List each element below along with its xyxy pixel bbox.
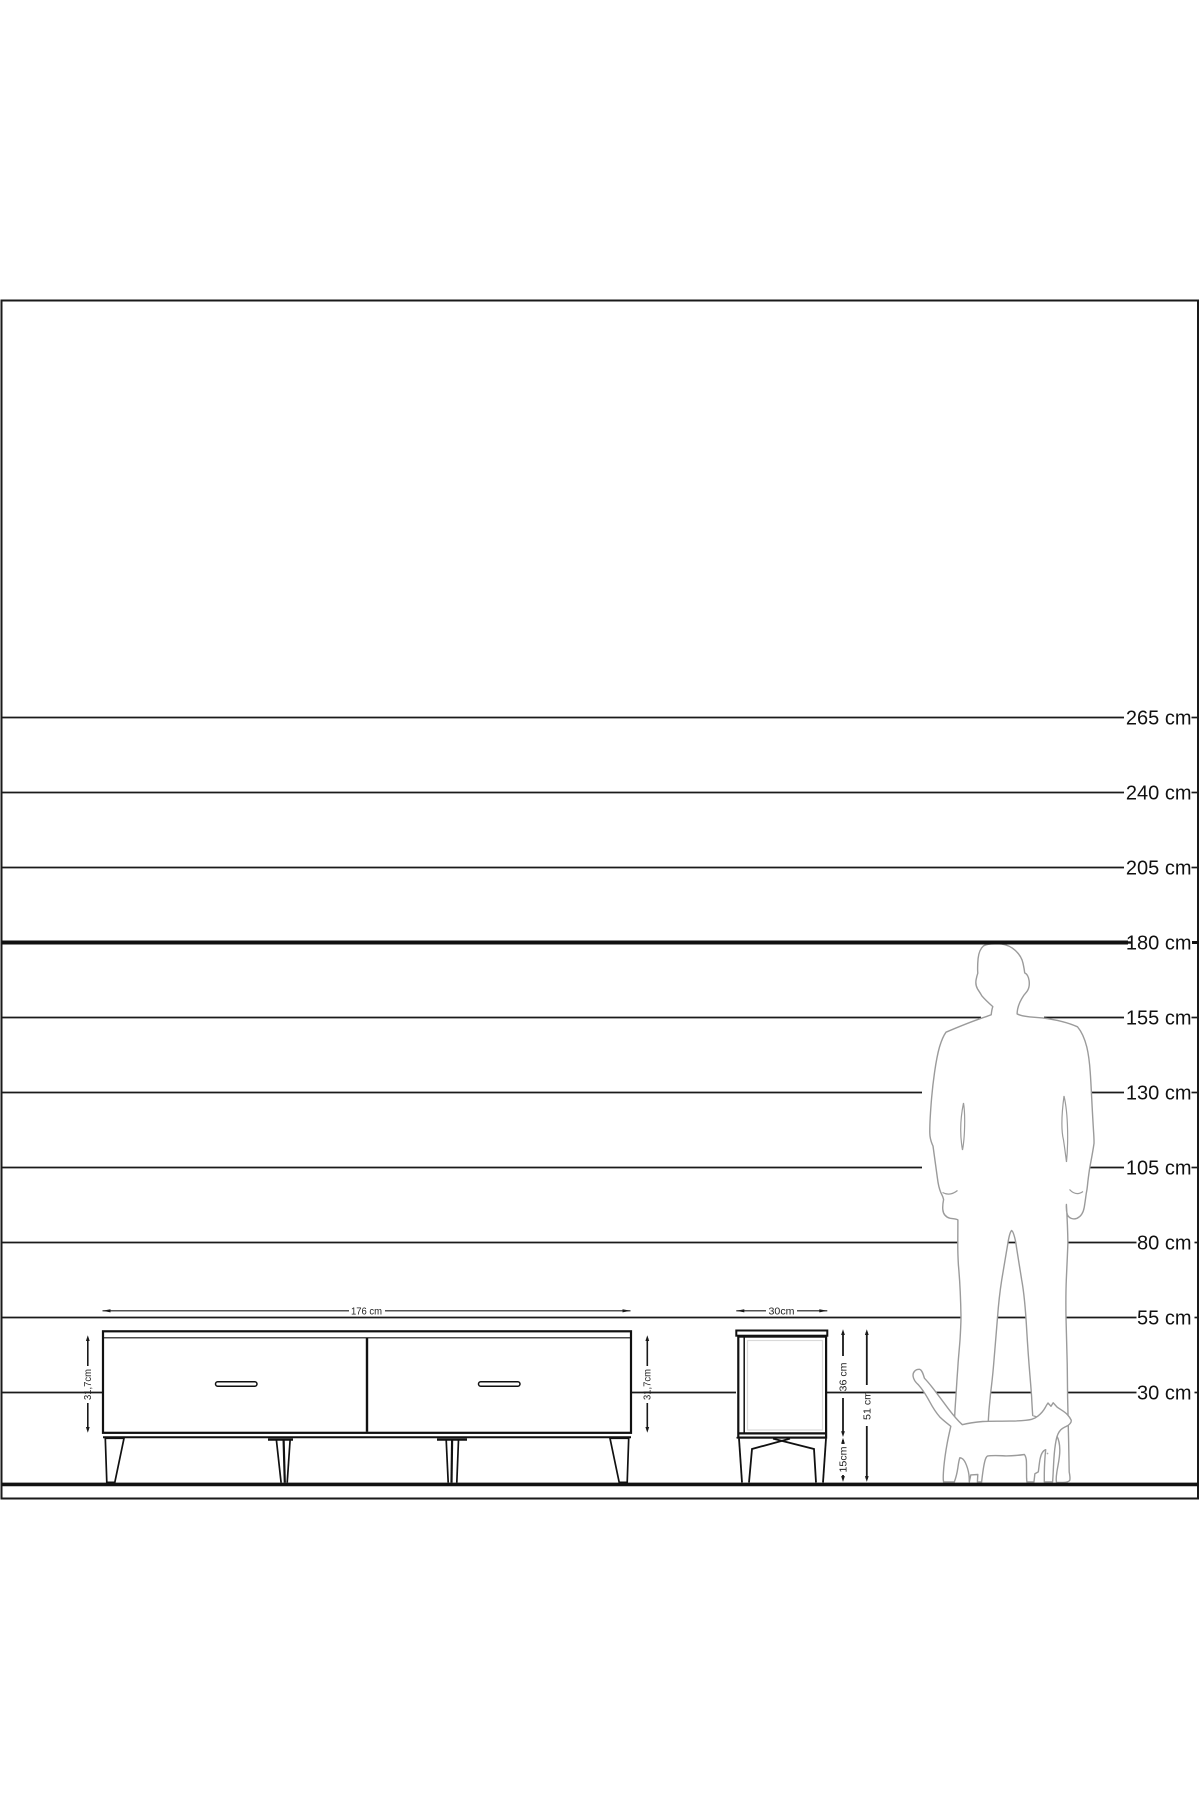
svg-text:80 cm: 80 cm — [1137, 1233, 1191, 1255]
svg-text:265 cm: 265 cm — [1126, 708, 1192, 730]
svg-text:105 cm: 105 cm — [1126, 1158, 1192, 1180]
svg-text:36 cm: 36 cm — [838, 1362, 850, 1391]
svg-text:31,7cm: 31,7cm — [642, 1369, 654, 1400]
svg-text:30cm: 30cm — [769, 1305, 795, 1317]
svg-text:55 cm: 55 cm — [1137, 1308, 1191, 1330]
svg-text:51 cm: 51 cm — [861, 1391, 873, 1420]
svg-text:155 cm: 155 cm — [1126, 1008, 1192, 1030]
svg-text:31,7cm: 31,7cm — [82, 1369, 94, 1400]
svg-text:130 cm: 130 cm — [1126, 1083, 1192, 1105]
svg-text:205 cm: 205 cm — [1126, 858, 1192, 880]
svg-text:15cm: 15cm — [838, 1446, 850, 1472]
svg-text:30 cm: 30 cm — [1137, 1383, 1191, 1405]
svg-text:240 cm: 240 cm — [1126, 783, 1192, 805]
svg-text:180 cm: 180 cm — [1126, 933, 1192, 955]
svg-text:176 cm: 176 cm — [351, 1305, 382, 1317]
